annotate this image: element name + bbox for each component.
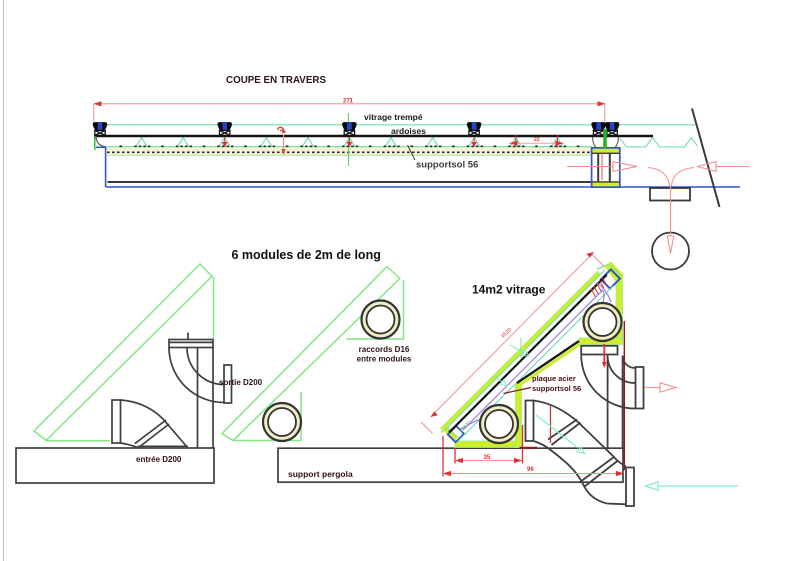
svg-text:support pergola: support pergola [288,469,353,479]
svg-text:sortie D200: sortie D200 [219,378,263,387]
svg-text:vitrage trempé: vitrage trempé [364,112,423,122]
svg-text:COUPE EN TRAVERS: COUPE EN TRAVERS [226,75,326,86]
svg-text:supportsol 56: supportsol 56 [416,160,478,171]
svg-text:supportsol 56: supportsol 56 [532,384,581,393]
svg-text:raccords D16: raccords D16 [359,345,410,354]
svg-text:ardoises: ardoises [391,126,426,136]
svg-text:22: 22 [534,137,540,143]
svg-text:96: 96 [527,467,534,473]
svg-text:35: 35 [484,455,491,461]
svg-text:plaque acier: plaque acier [532,374,576,383]
svg-text:6 modules de 2m de long: 6 modules de 2m de long [232,248,381,262]
svg-text:entre modules: entre modules [357,355,412,364]
svg-text:14m2 vitrage: 14m2 vitrage [472,283,546,297]
svg-text:entrée D200: entrée D200 [136,455,182,464]
svg-text:4520: 4520 [500,327,513,340]
svg-text:271: 271 [343,98,354,104]
